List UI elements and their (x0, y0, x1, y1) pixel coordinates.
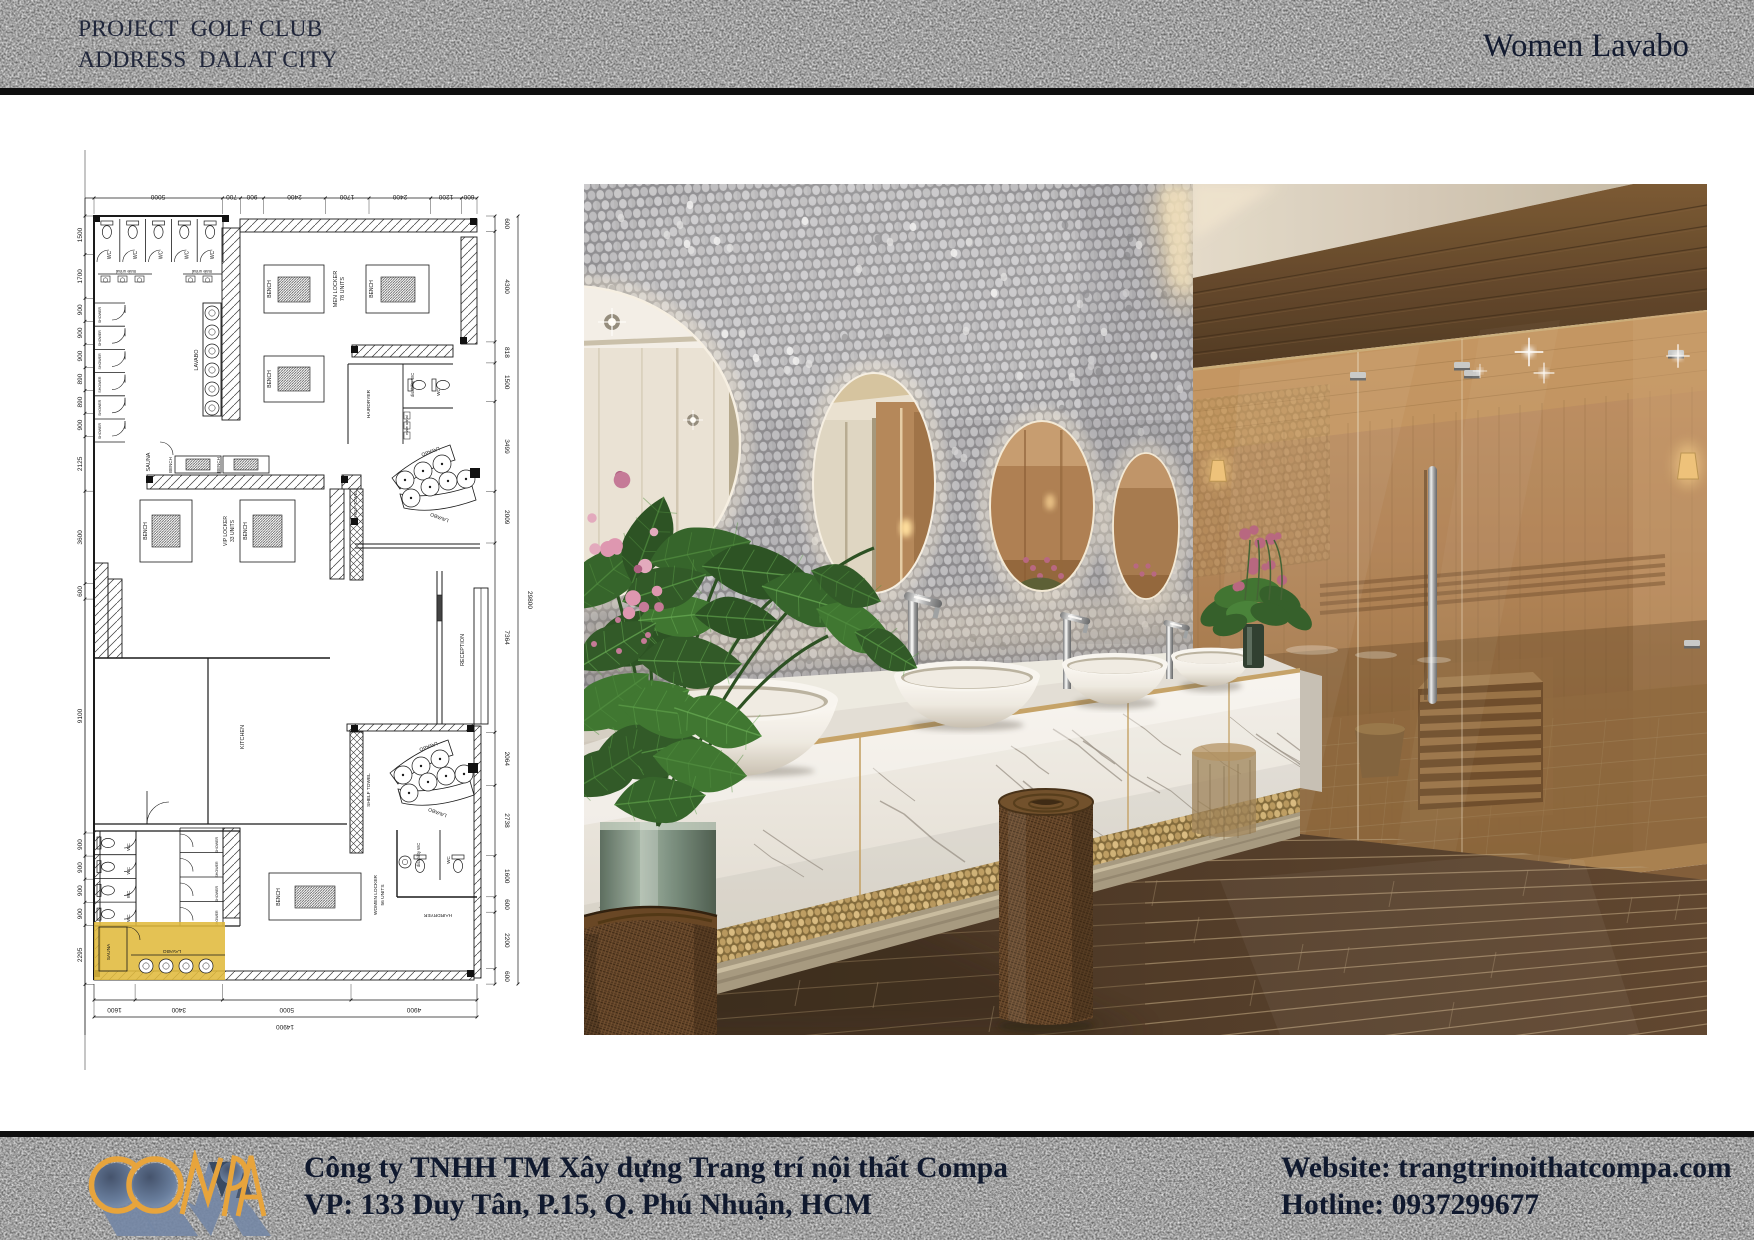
svg-text:LAVABO: LAVABO (194, 349, 200, 371)
svg-text:600: 600 (463, 193, 474, 200)
svg-text:890: 890 (77, 396, 84, 407)
svg-text:2400: 2400 (392, 193, 407, 200)
svg-text:KITCHEN: KITCHEN (240, 725, 246, 749)
svg-text:1500: 1500 (77, 227, 84, 242)
svg-text:WC: WC (133, 250, 139, 259)
svg-text:WC: WC (159, 250, 165, 259)
svg-text:900: 900 (77, 885, 84, 896)
svg-text:WC: WC (126, 890, 131, 898)
svg-text:818: 818 (503, 347, 510, 358)
svg-text:5000: 5000 (150, 193, 165, 200)
svg-text:HAIRDRYER: HAIRDRYER (423, 912, 452, 918)
svg-text:600: 600 (503, 971, 510, 982)
svg-text:600: 600 (503, 899, 510, 910)
svg-text:WC: WC (446, 856, 451, 864)
svg-text:9100: 9100 (77, 708, 84, 723)
svg-text:4300: 4300 (503, 279, 510, 294)
svg-text:2125: 2125 (77, 456, 84, 471)
svg-text:1600: 1600 (107, 1006, 122, 1013)
svg-text:SHOWER: SHOWER (215, 886, 219, 903)
svg-text:1700: 1700 (77, 269, 84, 284)
svg-text:4900: 4900 (406, 1006, 421, 1013)
svg-text:SAUNA: SAUNA (146, 452, 152, 471)
svg-text:disability WC: disability WC (410, 373, 415, 397)
svg-text:BENCH: BENCH (369, 280, 375, 298)
svg-text:1700: 1700 (339, 193, 354, 200)
svg-text:890: 890 (77, 373, 84, 384)
svg-text:BENCH: BENCH (216, 457, 221, 473)
svg-text:WC: WC (107, 250, 113, 259)
svg-text:WC: WC (126, 866, 131, 874)
svg-text:BENCH: BENCH (267, 280, 273, 298)
svg-text:2064: 2064 (503, 752, 510, 767)
svg-text:SAUNA: SAUNA (106, 943, 112, 960)
svg-text:600: 600 (77, 586, 84, 597)
svg-text:SHOWER: SHOWER (98, 330, 102, 347)
svg-text:SHOWER: SHOWER (215, 837, 219, 854)
svg-text:900: 900 (77, 419, 84, 430)
svg-text:900: 900 (77, 327, 84, 338)
svg-text:700: 700 (226, 193, 237, 200)
svg-text:SHOWER: SHOWER (215, 861, 219, 878)
svg-text:WC: WC (126, 914, 131, 922)
svg-text:WC: WC (210, 250, 216, 259)
svg-text:56 UNITS: 56 UNITS (380, 884, 386, 905)
svg-text:900: 900 (77, 862, 84, 873)
svg-text:33 UNITS: 33 UNITS (230, 519, 236, 542)
svg-text:1600: 1600 (503, 869, 510, 884)
svg-text:BENCH: BENCH (243, 522, 249, 540)
svg-text:29800: 29800 (526, 591, 533, 609)
svg-text:LAVABO: LAVABO (429, 511, 449, 523)
svg-text:900: 900 (246, 193, 257, 200)
svg-text:600: 600 (503, 218, 510, 229)
svg-text:7364: 7364 (503, 630, 510, 645)
svg-text:3600: 3600 (77, 530, 84, 545)
svg-text:male urinal: male urinal (116, 269, 137, 274)
svg-text:900: 900 (77, 908, 84, 919)
svg-text:2009: 2009 (503, 510, 510, 525)
svg-text:SHOWER: SHOWER (98, 423, 102, 440)
svg-text:male urinal: male urinal (192, 269, 213, 274)
svg-text:14900: 14900 (276, 1023, 294, 1030)
svg-text:2200: 2200 (503, 933, 510, 948)
svg-text:2738: 2738 (503, 813, 510, 828)
svg-text:3499: 3499 (503, 439, 510, 454)
svg-text:1500: 1500 (503, 375, 510, 390)
svg-text:2295: 2295 (77, 947, 84, 962)
svg-text:900: 900 (77, 304, 84, 315)
svg-text:2400: 2400 (287, 193, 302, 200)
svg-text:RECEPTION: RECEPTION (460, 634, 466, 666)
svg-text:LAVABO: LAVABO (427, 806, 447, 818)
svg-text:WOMEN LOCKER: WOMEN LOCKER (373, 874, 379, 915)
svg-text:5000: 5000 (279, 1006, 294, 1013)
svg-text:78 UNITS: 78 UNITS (340, 277, 346, 301)
svg-text:BENCH: BENCH (168, 457, 173, 473)
svg-text:SHOWER: SHOWER (98, 399, 102, 416)
svg-text:MEN LOCKER: MEN LOCKER (333, 271, 339, 307)
svg-text:SHELF TOWEL: SHELF TOWEL (366, 773, 372, 807)
svg-text:WC: WC (436, 388, 441, 396)
svg-text:BENCH: BENCH (143, 522, 149, 540)
svg-text:1200: 1200 (438, 193, 453, 200)
svg-text:SHOWER: SHOWER (98, 307, 102, 324)
svg-text:VIP LOCKER: VIP LOCKER (223, 516, 229, 546)
svg-text:LAVABO: LAVABO (162, 948, 181, 954)
svg-text:3400: 3400 (171, 1006, 186, 1013)
svg-text:SHOWER: SHOWER (98, 376, 102, 393)
svg-text:SHOWER: SHOWER (98, 353, 102, 370)
svg-text:900: 900 (77, 350, 84, 361)
svg-text:900: 900 (77, 839, 84, 850)
svg-text:disability WC: disability WC (416, 843, 421, 867)
svg-text:WC: WC (184, 250, 190, 259)
svg-text:HAIRDRYER: HAIRDRYER (366, 389, 372, 418)
svg-text:WC: WC (126, 843, 131, 851)
svg-text:SHELF TOWEL: SHELF TOWEL (353, 490, 358, 520)
svg-text:BENCH: BENCH (276, 888, 282, 906)
svg-text:BENCH: BENCH (267, 370, 273, 388)
